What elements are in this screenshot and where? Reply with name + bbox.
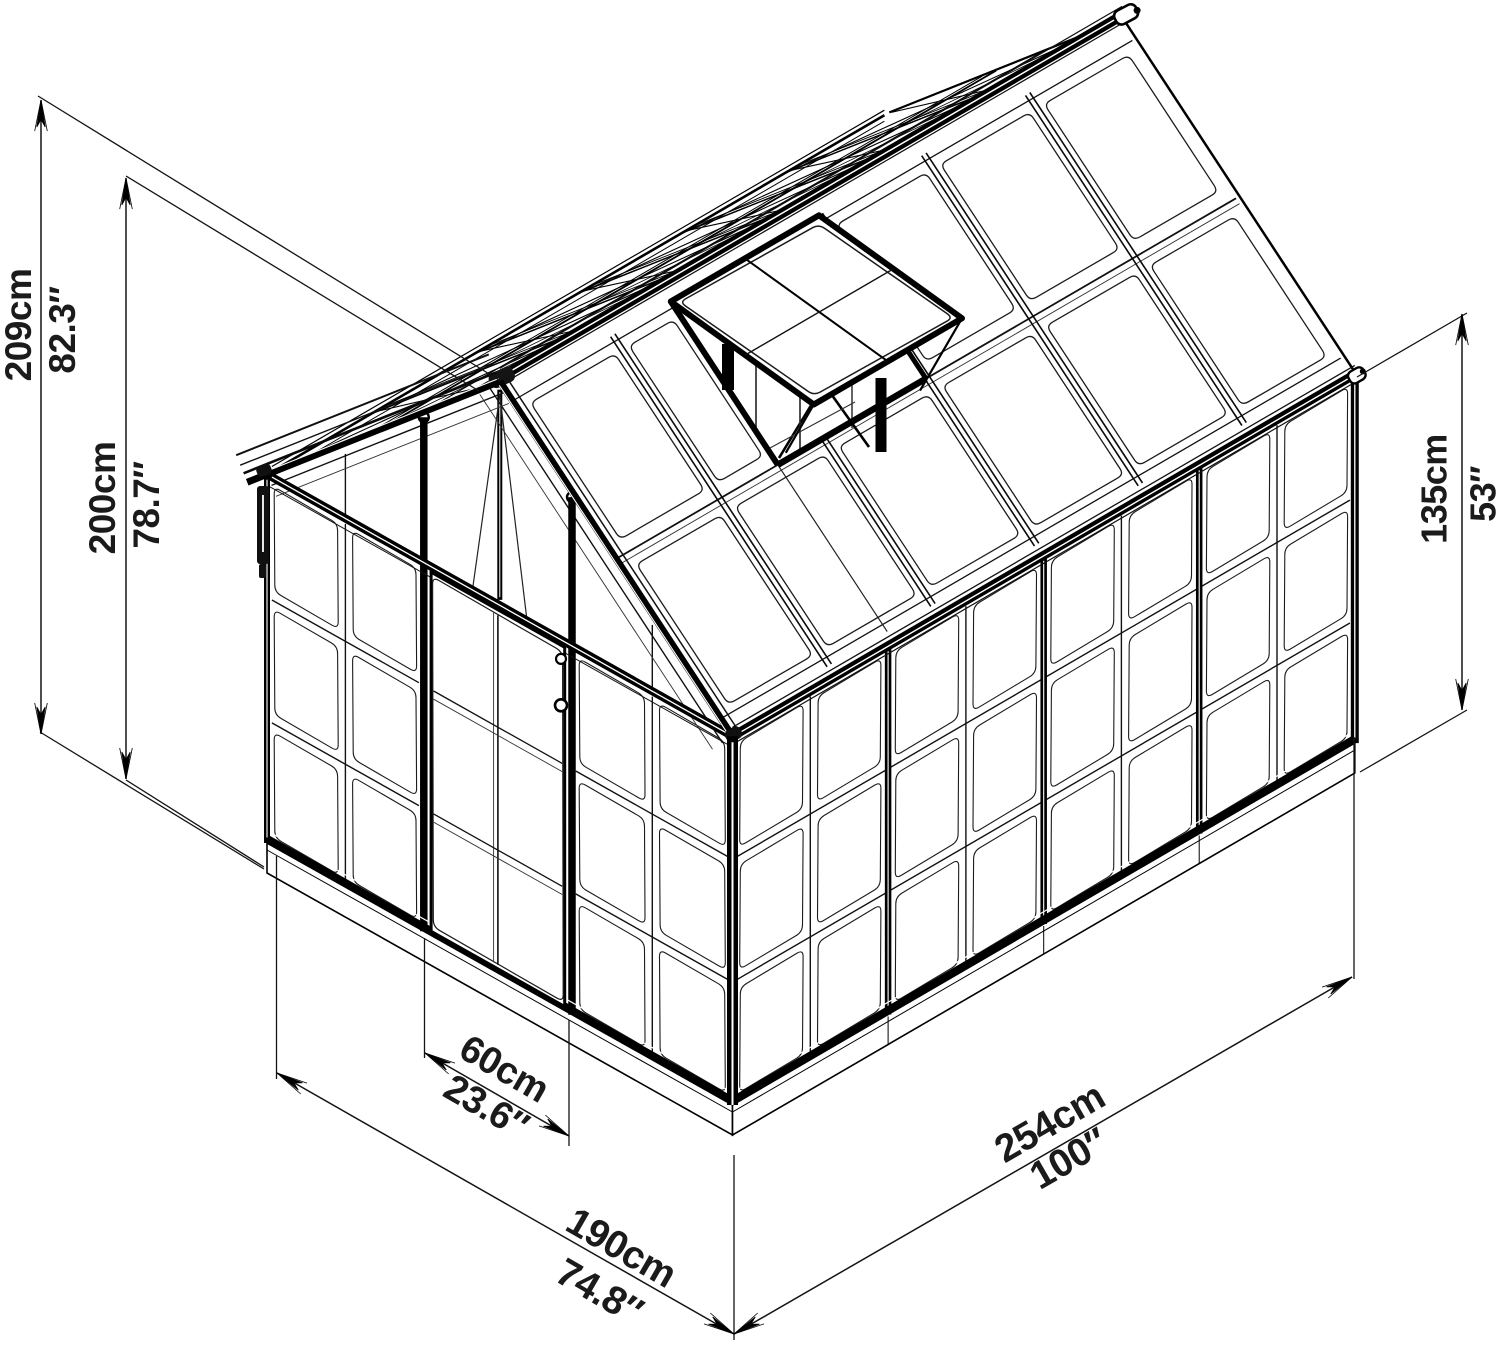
svg-text:82.3″: 82.3″	[42, 286, 83, 374]
svg-text:78.7″: 78.7″	[126, 461, 167, 549]
svg-text:135cm: 135cm	[1414, 434, 1455, 544]
svg-text:53″: 53″	[1463, 466, 1500, 522]
svg-text:200cm: 200cm	[82, 442, 123, 555]
svg-text:209cm: 209cm	[0, 269, 39, 382]
